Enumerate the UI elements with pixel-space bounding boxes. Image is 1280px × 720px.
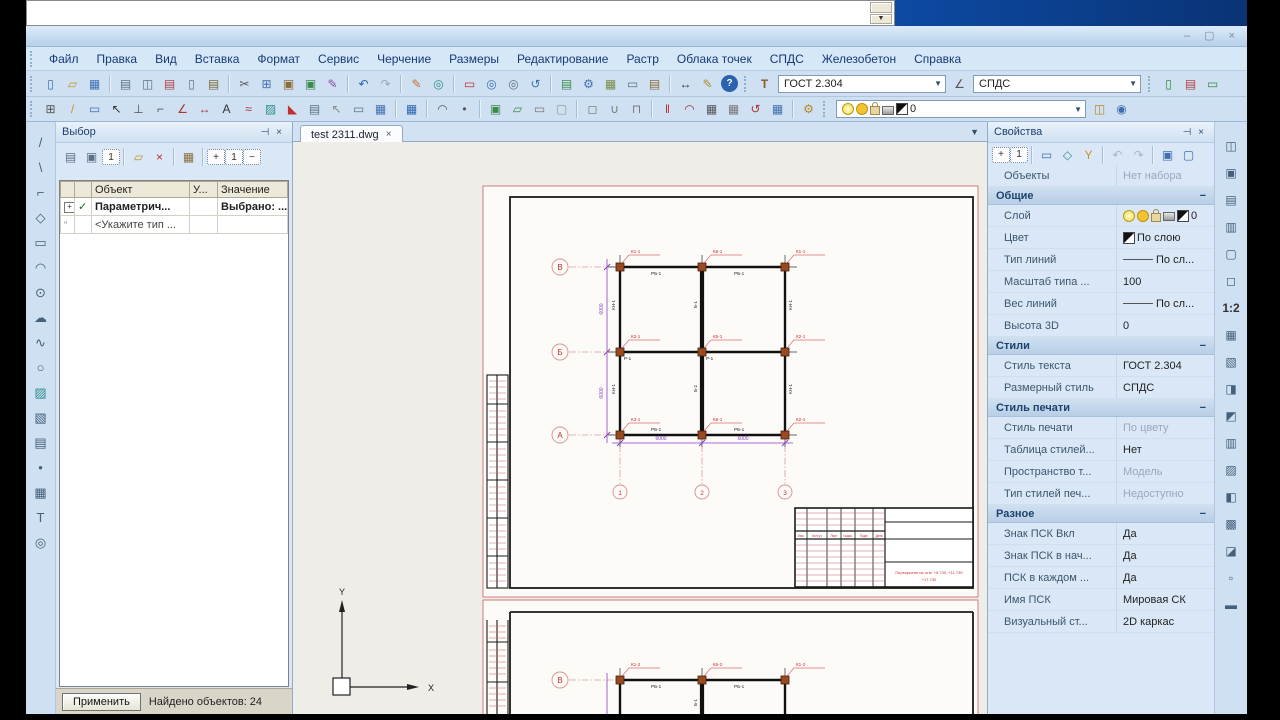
window-titlebar[interactable]: – ▢ × (26, 26, 1247, 47)
mtext-tool-icon[interactable]: ≈ (238, 99, 259, 120)
single-object-icon[interactable]: 1 (102, 149, 120, 165)
property-label: Цвет (988, 232, 1116, 244)
properties-panel-header[interactable]: Свойства ⊣ × (988, 122, 1214, 143)
zoom-window-icon[interactable]: ▭ (459, 73, 480, 94)
print-icon[interactable]: ▤ (115, 73, 136, 94)
chip-icon (1177, 210, 1189, 222)
copy-properties-icon[interactable]: ✎ (322, 73, 343, 94)
collapse-section-icon[interactable]: − (1200, 508, 1206, 520)
condition-cell[interactable] (190, 198, 218, 216)
keyboard-icon[interactable]: ▭ (622, 73, 643, 94)
grid-axes-icon[interactable]: ▦ (701, 99, 722, 120)
rt-viewport-2-icon[interactable]: ▥ (1220, 215, 1242, 238)
col-object[interactable]: Объект (92, 182, 190, 198)
beam-label: РБ-1 (734, 271, 745, 276)
toolbar-grip[interactable] (30, 76, 35, 92)
axis-label: А (557, 431, 563, 440)
menu-view[interactable]: Вид (146, 52, 186, 66)
property-row[interactable]: ПСК в каждом ...Да (988, 567, 1214, 589)
zoom-in-icon[interactable]: ◎ (481, 73, 502, 94)
revision-cloud-icon[interactable]: ↺ (745, 99, 766, 120)
property-value[interactable]: Мировая СК (1116, 589, 1214, 610)
copy-icon[interactable]: ⊞ (256, 73, 277, 94)
close-icon[interactable]: × (272, 125, 286, 139)
table-row[interactable]: + ✓ Параметрич... Выбрано: ... (61, 198, 288, 216)
column-label: К1-1 (796, 249, 806, 254)
table-row[interactable]: " <Укажите тип ... (61, 216, 288, 234)
select-poly-icon[interactable]: ◇ (1057, 144, 1078, 165)
angle-dim-icon[interactable]: ∠ (172, 99, 193, 120)
text-tool-icon[interactable]: A (216, 99, 237, 120)
point-tool-icon[interactable]: • (454, 99, 475, 120)
property-label: Стиль печати (988, 422, 1116, 434)
dim-arc-icon[interactable]: ◠ (679, 99, 700, 120)
stamp-header: Дата (875, 534, 882, 538)
rt-frame-icon[interactable]: ◻ (1220, 269, 1242, 292)
axis-label: Б (557, 348, 562, 357)
property-value[interactable]: Недоступно (1116, 483, 1214, 504)
reference-book-icon[interactable]: ▤ (644, 73, 665, 94)
menu-help[interactable]: Справка (905, 52, 970, 66)
quick-edit-icon[interactable]: ✎ (697, 73, 718, 94)
delete-selection-icon[interactable]: × (149, 147, 170, 168)
property-value[interactable]: 0 (1116, 315, 1214, 336)
block-icon[interactable]: ▭ (84, 99, 105, 120)
layer-freeze-icon (856, 103, 868, 115)
toolbar-grip[interactable] (744, 76, 749, 92)
raster-image-icon[interactable]: ▤ (304, 99, 325, 120)
toolbar-separator (400, 75, 402, 93)
property-row[interactable]: Слой0 (988, 205, 1214, 227)
section-label: Разное (996, 508, 1034, 520)
arc-tool-icon[interactable]: ◠ (432, 99, 453, 120)
selection-list: Объект У... Значение + ✓ Параметрич... В… (59, 180, 289, 687)
save-file-icon[interactable]: ▦ (84, 73, 105, 94)
beam-label: Б-1 (693, 698, 698, 706)
menu-edit[interactable]: Правка (88, 52, 147, 66)
tool-hatch-icon[interactable]: ▨ (30, 382, 52, 403)
copy-object-icon[interactable]: ▣ (485, 99, 506, 120)
layout-grid-icon[interactable]: ▦ (370, 99, 391, 120)
beam-label: Р-1 (624, 356, 632, 361)
property-value[interactable]: По цвету (1116, 417, 1214, 438)
beam-label: Р-1 (706, 356, 714, 361)
tool-ray-icon[interactable]: \ (30, 157, 52, 178)
menu-draw[interactable]: Черчение (368, 52, 440, 66)
viewport-icon[interactable]: ▭ (348, 99, 369, 120)
rt-grid-2-icon[interactable]: ▧ (1220, 350, 1242, 373)
toolbar-grip[interactable] (30, 101, 35, 117)
tab-close-icon[interactable]: × (386, 129, 392, 140)
menu-raster[interactable]: Растр (617, 52, 667, 66)
tool-donut-icon[interactable]: ◎ (30, 532, 52, 553)
document-tab-bar: test 2311.dwg × ▼ (293, 122, 987, 142)
collapse-section-icon[interactable]: − (1200, 190, 1206, 202)
property-value[interactable]: Нет набора (1116, 165, 1214, 186)
checkbox[interactable]: ✓ (75, 198, 92, 216)
property-row[interactable]: Знак ПСК в нач...Да (988, 545, 1214, 567)
property-value[interactable]: По сл... (1116, 293, 1214, 314)
property-value[interactable]: Да (1116, 545, 1214, 566)
rt-half-1-icon[interactable]: ◨ (1220, 377, 1242, 400)
col-blank-2 (75, 182, 92, 198)
property-row[interactable]: Имя ПСКМировая СК (988, 589, 1214, 611)
menu-reinforced-concrete[interactable]: Железобетон (813, 52, 905, 66)
osnap-icon[interactable]: ⊞ (40, 99, 61, 120)
property-value[interactable]: Нет (1116, 439, 1214, 460)
tool-polyline-icon[interactable]: ⌐ (30, 182, 52, 203)
column-label: К6-2 (713, 662, 723, 667)
tool-image-icon[interactable]: ▤ (30, 432, 52, 453)
property-row[interactable]: Тип линийПо сл... (988, 249, 1214, 271)
zoom-out-icon[interactable]: ◎ (503, 73, 524, 94)
background-scrollbar[interactable]: ▼ (870, 2, 892, 24)
tool-spline-icon[interactable]: ∿ (30, 332, 52, 353)
dim-style-combo[interactable]: СПДС ▼ (973, 75, 1141, 93)
redo-icon[interactable]: ↷ (375, 73, 396, 94)
selection-panel-toolbar: ▤▣1▱×▦+1− (56, 143, 292, 171)
publish-icon[interactable]: ▤ (203, 73, 224, 94)
property-row[interactable]: Тип стилей печ...Недоступно (988, 483, 1214, 505)
calculator-icon[interactable]: ▦ (401, 99, 422, 120)
property-value[interactable]: 0 (1116, 205, 1214, 226)
zoom-previous-icon[interactable]: ↺ (525, 73, 546, 94)
options-icon[interactable]: ⚙ (578, 73, 599, 94)
pin-icon[interactable]: ⊣ (258, 125, 272, 139)
property-row[interactable]: Пространство т...Модель (988, 461, 1214, 483)
toolbar-grip[interactable] (1148, 76, 1153, 92)
property-value[interactable]: Да (1116, 523, 1214, 544)
rt-half-2-icon[interactable]: ◩ (1220, 404, 1242, 427)
selection-panel-header[interactable]: Выбор ⊣ × (56, 122, 292, 143)
erase-icon[interactable]: ✎ (406, 73, 427, 94)
chart-view-icon[interactable]: ▤ (1180, 73, 1201, 94)
report-type-2-icon[interactable]: ▣ (81, 147, 102, 168)
tab-list-dropdown-icon[interactable]: ▼ (970, 127, 979, 137)
property-value[interactable]: По слою (1116, 227, 1214, 248)
column-label: К3-1 (631, 417, 641, 422)
close-icon[interactable]: × (1194, 125, 1208, 139)
regen-icon[interactable]: ◎ (428, 73, 449, 94)
property-row[interactable]: ЦветПо слою (988, 227, 1214, 249)
current-layer-combo[interactable]: 0 ▼ (836, 100, 1086, 118)
maximize-button[interactable]: ▢ (1204, 29, 1214, 43)
beam-label: Б-1 (693, 300, 698, 308)
property-label: Вес линий (988, 298, 1116, 310)
menu-modify[interactable]: Редактирование (508, 52, 617, 66)
property-section[interactable]: Разное− (988, 505, 1214, 523)
drawing-area: test 2311.dwg × ▼ (293, 122, 987, 714)
property-row[interactable]: Знак ПСК ВклДа (988, 523, 1214, 545)
weld-seam-icon[interactable]: ∪ (604, 99, 625, 120)
column-label: К2-1 (631, 334, 641, 339)
toolbar-separator (651, 100, 653, 118)
col-value[interactable]: Значение (218, 182, 288, 198)
property-label: Имя ПСК (988, 594, 1116, 606)
undo-icon[interactable]: ↶ (353, 73, 374, 94)
close-button[interactable]: × (1229, 29, 1235, 43)
draw-tools-toolbar: /\⌐◇▭◠⊙☁∿○▨▧▤•▦T◎ (26, 122, 56, 714)
level-1-icon[interactable]: 1 (1010, 147, 1028, 163)
properties-toolbar: +1▭◇Y↶↷▣▢ (988, 143, 1214, 166)
property-row[interactable]: Размерный стильСПДС (988, 377, 1214, 399)
hatch-tool-icon[interactable]: ▨ (260, 99, 281, 120)
sun-icon (1137, 210, 1149, 222)
toolbar-separator (395, 100, 397, 118)
property-row[interactable]: Стиль текстаГОСТ 2.304 (988, 355, 1214, 377)
beam-label: КН-1 (611, 383, 616, 394)
level-one-icon[interactable]: 1 (225, 149, 243, 165)
menu-spds[interactable]: СПДС (761, 52, 813, 66)
rt-corner-icon[interactable]: ◪ (1220, 539, 1242, 562)
beam-label: РБ-1 (734, 427, 745, 432)
selection-form-icon[interactable]: ▦ (178, 147, 199, 168)
expand-icon[interactable]: + (64, 202, 75, 213)
property-row[interactable]: ОбъектыНет набора (988, 165, 1214, 187)
menu-insert[interactable]: Вставка (186, 52, 249, 66)
select-similar-icon[interactable]: ↖ (326, 99, 347, 120)
chevron-down-icon[interactable]: ▼ (1121, 79, 1137, 88)
property-label: Слой (988, 210, 1116, 222)
axis-label: В (557, 263, 562, 272)
select-icon[interactable]: ↖ (106, 99, 127, 120)
stamp-header: Кол.уч (812, 534, 822, 538)
toolbar-grip[interactable] (823, 101, 828, 117)
dim-style-value: СПДС (979, 78, 1121, 90)
tool-line-icon[interactable]: / (30, 132, 52, 153)
limits-icon[interactable]: ↔ (675, 73, 696, 94)
apply-button[interactable]: Применить (62, 693, 141, 711)
scroll-thumb[interactable] (870, 2, 892, 13)
collapse-section-icon[interactable]: − (1200, 402, 1206, 414)
beam-label: РБ-1 (651, 427, 662, 432)
stamp-title-line: Перекрытие на отм. +5.730, +11.730 (895, 570, 963, 575)
gradient-tool-icon[interactable]: ◣ (282, 99, 303, 120)
property-section[interactable]: Общие− (988, 187, 1214, 205)
minimize-button[interactable]: – (1184, 29, 1190, 43)
document-tab[interactable]: test 2311.dwg × (300, 125, 403, 143)
clip-icon[interactable]: ▱ (507, 99, 528, 120)
render-icon[interactable]: ▦ (600, 73, 621, 94)
layer-states-icon[interactable]: ◉ (1111, 99, 1132, 120)
dim-text: 6000 (737, 436, 748, 442)
tool-cloud-icon[interactable]: ☁ (30, 307, 52, 328)
open-file-icon[interactable]: ▱ (62, 73, 83, 94)
prev-selection-icon[interactable]: ↶ (1107, 144, 1128, 165)
pin-icon[interactable]: ⊣ (1180, 125, 1194, 139)
property-row[interactable]: Визуальный ст...2D каркас (988, 611, 1214, 633)
property-label: Тип стилей печ... (988, 488, 1116, 500)
property-value[interactable]: ГОСТ 2.304 (1116, 355, 1214, 376)
property-row[interactable]: Высота 3D0 (988, 315, 1214, 337)
rt-view-full-icon[interactable]: ◫ (1220, 134, 1242, 157)
clear-selection-icon[interactable]: ▢ (1178, 144, 1199, 165)
value-cell[interactable]: Выбрано: ... (218, 198, 288, 216)
tool-table-icon[interactable]: ▦ (30, 482, 52, 503)
ucs-x-label: X (428, 683, 434, 693)
grid-axes-2-icon[interactable]: ▦ (723, 99, 744, 120)
toolbar-separator (479, 100, 481, 118)
notes-icon[interactable]: ▭ (1202, 73, 1223, 94)
document-tab-label: test 2311.dwg (311, 129, 379, 141)
rt-half-3-icon[interactable]: ◧ (1220, 485, 1242, 508)
collapse-section-icon[interactable]: − (1200, 340, 1206, 352)
axis-label: 2 (700, 490, 704, 497)
standard-toolbar: ▯▱▦▤◫▤▯▤✂⊞▣▣✎↶↷✎◎▭◎◎↺▤⚙▦▭▤↔✎? T ГОСТ 2.3… (26, 71, 1247, 97)
property-value[interactable]: СПДС (1116, 377, 1214, 398)
menu-file[interactable]: Файл (40, 52, 88, 66)
menu-tools[interactable]: Сервис (309, 52, 368, 66)
print-preview-icon[interactable]: ◫ (137, 73, 158, 94)
pickadd-toggle-icon[interactable]: ▣ (1157, 144, 1178, 165)
rt-box-icon[interactable]: ▢ (1220, 242, 1242, 265)
property-section[interactable]: Стили− (988, 337, 1214, 355)
cut-icon[interactable]: ✂ (234, 73, 255, 94)
chevron-down-icon[interactable]: ▼ (926, 79, 942, 88)
select-objects-icon[interactable]: ▭ (1036, 144, 1057, 165)
property-section[interactable]: Стиль печати− (988, 399, 1214, 417)
property-label: Знак ПСК в нач... (988, 550, 1116, 562)
property-row[interactable]: Стиль печатиПо цвету (988, 417, 1214, 439)
rt-bar-icon[interactable]: ▬ (1220, 593, 1242, 616)
toolbar-separator (109, 75, 111, 93)
tool-rectangle-icon[interactable]: ▭ (30, 232, 52, 253)
found-objects-status: Найдено объектов: 24 (149, 696, 262, 708)
selection-panel-title: Выбор (62, 126, 96, 138)
expand-plus-icon[interactable]: + (992, 147, 1010, 163)
menu-dimensions[interactable]: Размеры (440, 52, 508, 66)
col-condition[interactable]: У... (190, 182, 218, 198)
box-3d-icon[interactable]: ▭ (529, 99, 550, 120)
scroll-down-button[interactable]: ▼ (870, 14, 892, 25)
menu-grip[interactable] (30, 51, 35, 67)
paste-special-icon[interactable]: ▣ (300, 73, 321, 94)
beam-label: КН-1 (788, 299, 793, 310)
desktop-background (895, 0, 1247, 26)
tool-polygon-icon[interactable]: ◇ (30, 207, 52, 228)
property-label: Таблица стилей... (988, 444, 1116, 456)
section-label: Стиль печати (996, 402, 1070, 414)
ortho-icon[interactable]: ⊥ (128, 99, 149, 120)
axis-label: 1 (618, 490, 622, 497)
paste-icon[interactable]: ▣ (278, 73, 299, 94)
dim-text: 6000 (655, 436, 666, 442)
repeat-mark: " (61, 216, 75, 234)
object-cell[interactable]: Параметрич... (92, 198, 190, 216)
plot-icon[interactable]: ▤ (159, 73, 180, 94)
property-row[interactable]: Масштаб типа ...100 (988, 271, 1214, 293)
chevron-down-icon[interactable]: ▼ (1066, 105, 1082, 114)
model-canvas[interactable]: В Б А В 1 2 3 (293, 142, 987, 714)
open-selection-icon[interactable]: ▱ (128, 147, 149, 168)
bracket-icon[interactable]: ⊓ (626, 99, 647, 120)
tool-arc-icon[interactable]: ◠ (30, 257, 52, 278)
menu-point-clouds[interactable]: Облака точек (668, 52, 761, 66)
draw-line-icon[interactable]: / (62, 99, 83, 120)
property-label: Визуальный ст... (988, 616, 1116, 628)
sheet-2[interactable] (483, 600, 978, 714)
polyline-tool-icon[interactable]: ⌐ (150, 99, 171, 120)
rt-small-icon[interactable]: ▫ (1220, 566, 1242, 589)
rt-lines-icon[interactable]: ▥ (1220, 431, 1242, 454)
aligned-dim-icon[interactable]: ↔ (194, 99, 215, 120)
text-style-icon: T (754, 73, 775, 94)
property-value[interactable]: По сл... (1116, 249, 1214, 270)
empty-slot-icon[interactable]: ▢ (551, 99, 572, 120)
cad-application-window: – ▢ × Файл Правка Вид Вставка Формат Сер… (26, 26, 1247, 714)
properties-panel: Свойства ⊣ × +1▭◇Y↶↷▣▢ ОбъектыНет набора… (987, 122, 1214, 714)
column-label: К2-1 (796, 334, 806, 339)
toolbar-separator (1102, 146, 1104, 164)
draft-settings-icon[interactable]: ▤ (556, 73, 577, 94)
rt-dense-icon[interactable]: ▩ (1220, 512, 1242, 535)
stamp-header: Лист (831, 534, 838, 538)
video-frame: ▼ – ▢ × Файл Правка Вид Вставка Формат С… (0, 0, 1280, 720)
quick-filter-icon[interactable]: Y (1078, 144, 1099, 165)
collapse-all-icon[interactable]: − (243, 149, 261, 165)
tool-point-icon[interactable]: • (30, 457, 52, 478)
new-file-icon[interactable]: ▯ (40, 73, 61, 94)
expand-all-icon[interactable]: + (207, 149, 225, 165)
toolbar-separator (123, 148, 125, 166)
column-label: К5-1 (713, 334, 723, 339)
beam-label: РБ-1 (651, 271, 662, 276)
quick-select-icon[interactable]: ⚙ (798, 99, 819, 120)
property-value[interactable]: 2D каркас (1116, 611, 1214, 632)
title-block[interactable]: Изм. Кол.уч Лист №док. Подп. Дата Перекр… (795, 508, 973, 587)
property-row[interactable]: Таблица стилей...Нет (988, 439, 1214, 461)
stamp-header: Изм. (798, 534, 805, 538)
dim-chain-icon[interactable]: ‖ (657, 99, 678, 120)
rt-grid-1-icon[interactable]: ▦ (1220, 323, 1242, 346)
property-value[interactable]: 100 (1116, 271, 1214, 292)
toolbar-separator (792, 100, 794, 118)
tool-region-icon[interactable]: ▧ (30, 407, 52, 428)
tool-ellipse-icon[interactable]: ○ (30, 357, 52, 378)
rt-view-sheet-icon[interactable]: ▣ (1220, 161, 1242, 184)
page-setup-icon[interactable]: ▯ (181, 73, 202, 94)
property-label: Стиль текста (988, 360, 1116, 372)
stamp-header: №док. (843, 534, 852, 538)
rt-scale-icon[interactable]: 1:2 (1220, 296, 1242, 319)
lock-layer-icon[interactable]: ◫ (1089, 99, 1110, 120)
next-selection-icon[interactable]: ↷ (1128, 144, 1149, 165)
rt-viewport-1-icon[interactable]: ▤ (1220, 188, 1242, 211)
menu-format[interactable]: Формат (248, 52, 309, 66)
property-row[interactable]: Вес линийПо сл... (988, 293, 1214, 315)
help-icon[interactable]: ? (721, 75, 738, 92)
column-label: К6-1 (713, 417, 723, 422)
tool-text-icon[interactable]: T (30, 507, 52, 528)
column-label: К6-1 (713, 249, 723, 254)
new-sheet-icon[interactable]: ▯ (1158, 73, 1179, 94)
object-cell[interactable]: <Укажите тип ... (92, 216, 190, 234)
property-value[interactable]: Да (1116, 567, 1214, 588)
section-label: Общие (996, 190, 1034, 202)
text-style-combo[interactable]: ГОСТ 2.304 ▼ (778, 75, 946, 93)
table-tool-icon[interactable]: ▦ (767, 99, 788, 120)
property-label: Размерный стиль (988, 382, 1116, 394)
report-type-1-icon[interactable]: ▤ (60, 147, 81, 168)
u-shape-icon[interactable]: ◻ (582, 99, 603, 120)
property-value[interactable]: Модель (1116, 461, 1214, 482)
toolbar-separator (1031, 146, 1033, 164)
tool-circle-icon[interactable]: ⊙ (30, 282, 52, 303)
property-label: Высота 3D (988, 320, 1116, 332)
rt-hatch-icon[interactable]: ▨ (1220, 458, 1242, 481)
col-blank-1 (61, 182, 75, 198)
beam-label: Б-2 (693, 384, 698, 392)
